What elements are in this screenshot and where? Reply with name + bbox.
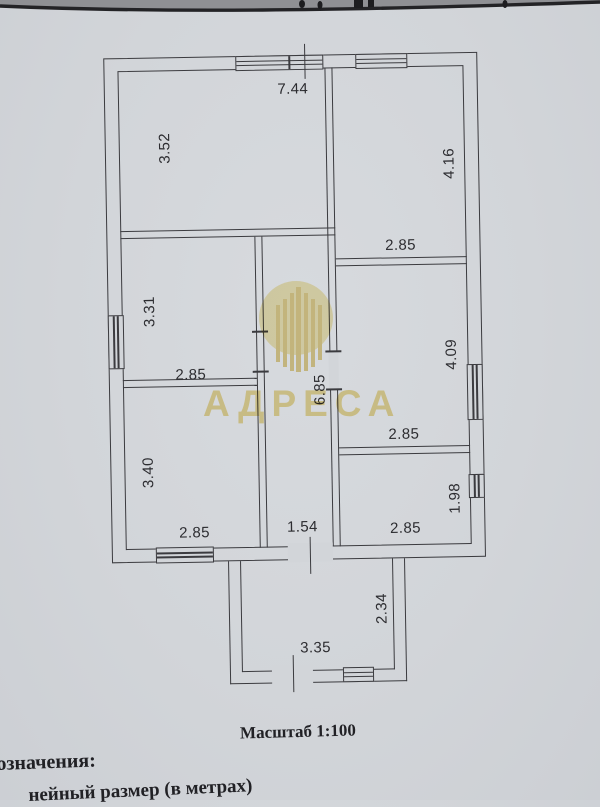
window-bottom-left bbox=[156, 547, 214, 564]
dim-top-width: 7.44 bbox=[277, 80, 308, 98]
dim-porch-width: 3.35 bbox=[300, 639, 331, 657]
dim-porch-height: 2.34 bbox=[373, 593, 391, 624]
opening-tick-hall-left-b bbox=[253, 371, 269, 373]
legend-heading-fragment: означения: bbox=[0, 750, 96, 776]
dimension-tick-top bbox=[304, 44, 306, 79]
opening-tick-hall-right-a bbox=[325, 350, 341, 352]
dim-midleft-height: 3.31 bbox=[141, 296, 159, 327]
dim-topright-height: 4.16 bbox=[440, 148, 458, 179]
window-right-1 bbox=[467, 364, 484, 420]
window-left bbox=[108, 315, 125, 369]
dim-botright-height: 1.98 bbox=[446, 483, 464, 514]
dim-botleft-width: 2.85 bbox=[179, 524, 210, 542]
window-right-2 bbox=[469, 474, 485, 498]
window-porch bbox=[343, 667, 374, 683]
dim-botright-width: 2.85 bbox=[390, 519, 421, 537]
dim-botleft-height: 3.40 bbox=[140, 457, 158, 488]
floor-plan: 7.44 3.52 4.16 2.85 3.31 2.85 6.85 4.09 … bbox=[0, 0, 600, 805]
dim-midleft-width: 2.85 bbox=[175, 366, 206, 384]
door-opening-hall-right bbox=[328, 351, 339, 389]
dim-hall-width: 1.54 bbox=[287, 518, 318, 536]
dim-hall-length: 6.85 bbox=[311, 374, 329, 405]
window-top-2 bbox=[355, 53, 407, 69]
scale-caption: Масштаб 1:100 bbox=[240, 720, 356, 743]
dim-midright-width: 2.85 bbox=[388, 425, 419, 443]
dim-living-height: 3.52 bbox=[156, 133, 174, 164]
opening-tick-hall-left-a bbox=[252, 331, 268, 333]
dim-midright-height: 4.09 bbox=[443, 339, 461, 370]
window-top-1 bbox=[235, 55, 323, 72]
scanned-page: 7.44 3.52 4.16 2.85 3.31 2.85 6.85 4.09 … bbox=[0, 0, 600, 800]
dim-topright-width: 2.85 bbox=[385, 236, 416, 254]
